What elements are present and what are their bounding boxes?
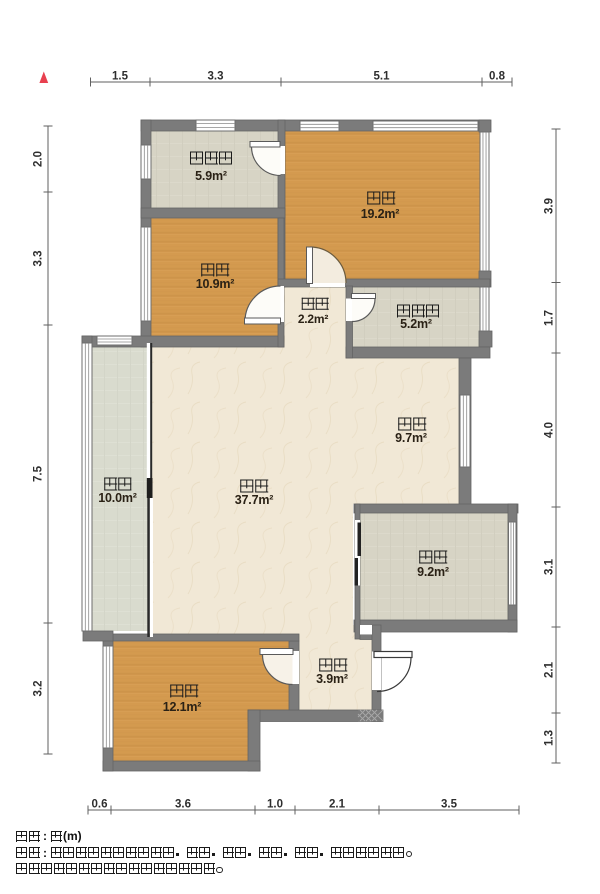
svg-text:1.0: 1.0 (267, 799, 283, 811)
svg-text:4.0: 4.0 (544, 422, 556, 438)
svg-text:0.8: 0.8 (489, 71, 506, 83)
svg-text:3.9: 3.9 (544, 198, 556, 214)
svg-text:2.1: 2.1 (544, 661, 556, 678)
svg-text:3.6: 3.6 (175, 799, 191, 811)
svg-text:1.7: 1.7 (544, 310, 556, 326)
svg-text:3.2: 3.2 (33, 681, 45, 697)
svg-text:1.5: 1.5 (112, 71, 129, 83)
svg-text:0.6: 0.6 (92, 799, 108, 811)
svg-text:3.3: 3.3 (33, 251, 45, 267)
svg-text:2.1: 2.1 (329, 799, 346, 811)
svg-text:1.3: 1.3 (544, 730, 556, 746)
svg-text:3.1: 3.1 (544, 558, 556, 575)
svg-text:3.5: 3.5 (441, 799, 458, 811)
svg-text:7.5: 7.5 (33, 465, 45, 482)
svg-text:3.3: 3.3 (208, 71, 224, 83)
svg-text:2.0: 2.0 (33, 151, 45, 167)
svg-text:5.1: 5.1 (374, 71, 391, 83)
